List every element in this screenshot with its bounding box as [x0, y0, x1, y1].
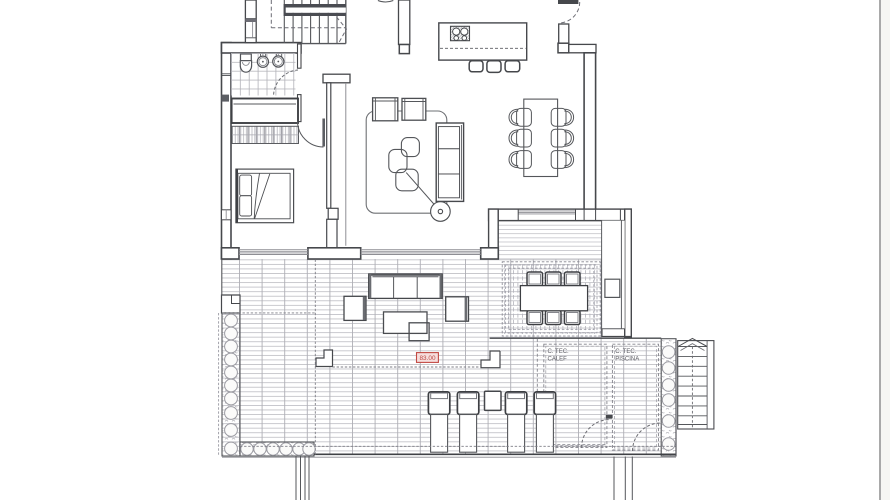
svg-text:CALEF: CALEF: [548, 357, 568, 363]
svg-text:PISCINA: PISCINA: [615, 357, 639, 363]
svg-text:83.00: 83.00: [420, 355, 436, 362]
svg-text:C. TEC.: C. TEC.: [615, 349, 637, 355]
svg-text:C. TEC.: C. TEC.: [548, 349, 570, 355]
